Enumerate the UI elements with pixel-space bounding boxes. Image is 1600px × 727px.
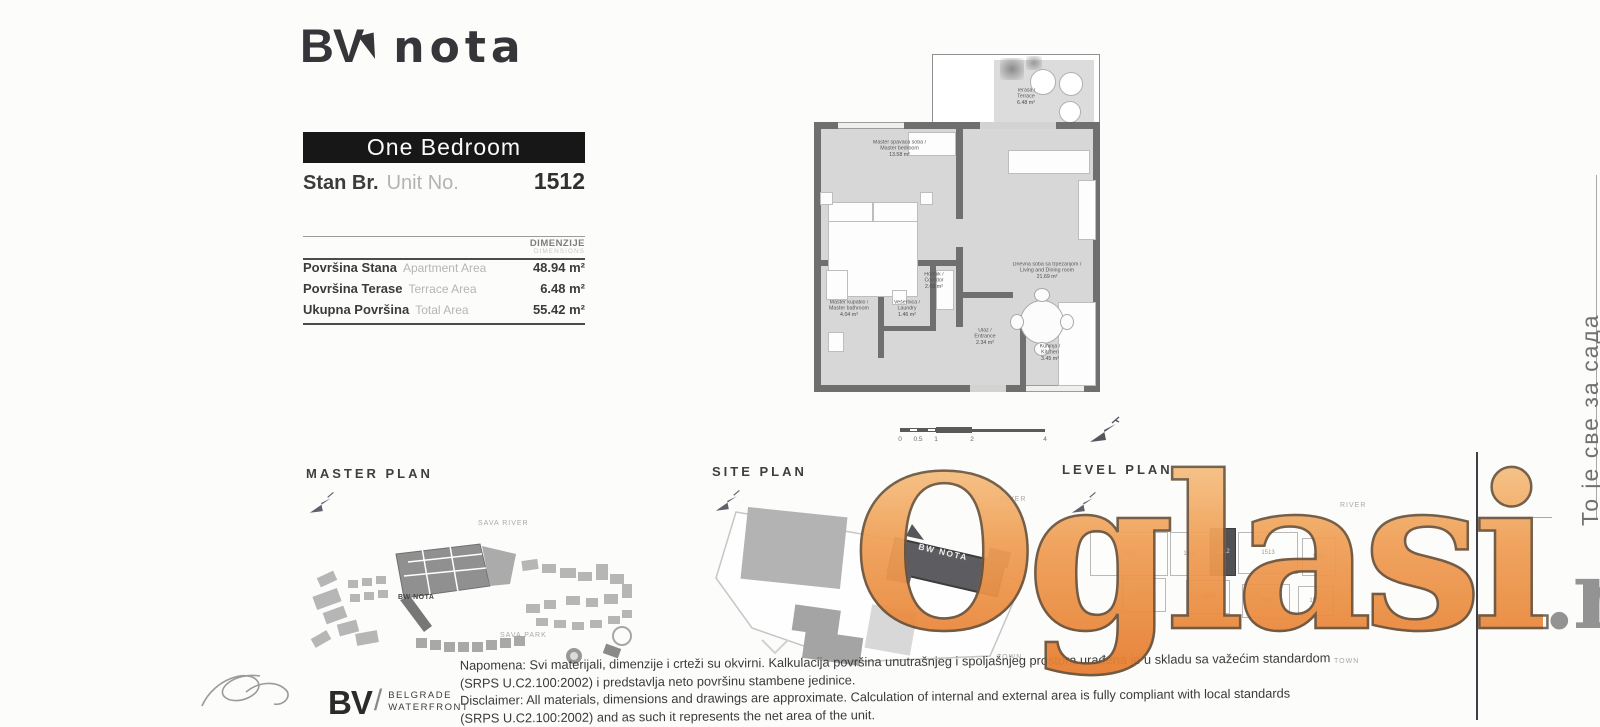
row-value: 55.42 m² — [533, 302, 585, 317]
room-label-kitchen: Kuhinja / Kitchen 3.45 m² — [1027, 344, 1073, 363]
row-label-en: Total Area — [415, 303, 468, 317]
unit-box: 1502 — [1122, 578, 1166, 612]
partition-wall — [963, 292, 1013, 298]
floor-plan: Terasa / Terrace 6.48 m² Master spavaća … — [812, 52, 1104, 397]
room-label-laundry: Vešernica / Laundry 1.46 m² — [887, 300, 927, 319]
unit-box: 1508 — [1170, 532, 1210, 576]
terrace-door — [980, 122, 1056, 129]
side-note-text: То је све за сада — [1577, 186, 1600, 526]
window — [838, 122, 904, 129]
partition-wall — [956, 129, 963, 219]
scanned-floor-plan-page: { "brand": {"bv": "BV", "nota": "nota"},… — [0, 0, 1600, 720]
nightstand — [820, 192, 833, 205]
table-row: Ukupna Površina Total Area 55.42 m² — [303, 302, 585, 323]
pillow — [828, 202, 873, 222]
logo-nota-text: nota — [393, 22, 525, 73]
table-header-sub: DIMENSIONS — [303, 249, 585, 256]
disclaimer-text: Napomena: Svi materijali, dimenzije i cr… — [460, 647, 1561, 727]
shower — [826, 270, 848, 300]
unit-box: 1513 — [1238, 532, 1298, 574]
row-label-sr: Površina Stana — [303, 260, 397, 275]
master-plan-title: MASTER PLAN — [306, 466, 433, 481]
room-label-living: Dnevna soba sa trpezarijom / Living and … — [1003, 262, 1091, 281]
row-label-en: Apartment Area — [403, 261, 486, 275]
room-label-master-bedroom: Master spavaća soba / Master bedroom 13.… — [849, 140, 950, 159]
sava-river-label: SAVA RIVER — [478, 520, 529, 527]
unit-label-sr: Stan Br. — [303, 172, 379, 195]
river-label: RIVER — [1340, 502, 1366, 509]
signature-swirl — [196, 662, 296, 720]
site-plan-title: SITE PLAN — [712, 464, 807, 479]
row-value: 6.48 m² — [540, 281, 585, 296]
nightstand — [920, 192, 933, 205]
pillow — [873, 202, 918, 222]
table-row: Površina Stana Apartment Area 48.94 m² — [303, 260, 585, 281]
footer-slash: / — [374, 684, 382, 718]
table-row: Površina Terase Terrace Area 6.48 m² — [303, 281, 585, 302]
room-label-entrance: Ulaz / Entrance 2.34 m² — [967, 328, 1004, 347]
unit-number-row: Stan Br. Unit No. 1512 — [303, 168, 585, 195]
dining-table — [1020, 300, 1064, 344]
photo-edge-line — [1476, 452, 1478, 720]
level-plan-title: LEVEL PLAN — [1062, 462, 1173, 477]
chair — [1034, 288, 1050, 302]
level-plan-map: 1501 1508 1512 1513 1514 1502 1503 1504 … — [1058, 486, 1350, 668]
bw-nota-map-label: BW NOTA — [398, 594, 434, 601]
area-table: DIMENZIJE DIMENSIONS Površina Stana Apar… — [303, 236, 585, 325]
table-header: DIMENZIJE DIMENSIONS — [303, 237, 585, 257]
room-label-master-bathroom: Master kupatilo / Master bathroom 4.04 m… — [825, 300, 873, 319]
watermark-suffix: .rs — [1543, 540, 1600, 651]
unit-box: 1503 — [1186, 580, 1230, 614]
bw-nota-logo: BVnota — [300, 18, 526, 73]
table-bottom-rule — [303, 323, 585, 325]
terrace-plant — [1026, 56, 1042, 70]
chair — [1010, 314, 1024, 330]
chair — [1060, 314, 1074, 330]
unit-label-en: Unit No. — [387, 172, 459, 195]
unit-box: 1501 — [1090, 532, 1168, 576]
scale-tick: 1 — [934, 436, 938, 443]
partition-wall — [878, 326, 936, 331]
row-label-en: Terrace Area — [408, 282, 476, 296]
belgrade-waterfront-logo: BV / BELGRADE WATERFRONT — [328, 684, 469, 722]
terrace-table — [1059, 101, 1081, 123]
unit-box-highlighted: 1512 — [1210, 528, 1236, 576]
footer-name: BELGRADE WATERFRONT — [388, 684, 469, 714]
north-arrow-icon — [308, 490, 336, 516]
sava-park-label: SAVA PARK — [500, 632, 547, 639]
master-plan-map — [304, 514, 638, 664]
entrance-door — [970, 385, 1006, 392]
scan-edge-tick — [1532, 517, 1552, 518]
row-value: 48.94 m² — [533, 260, 585, 275]
partition-wall — [956, 247, 963, 327]
terrace-plant — [1000, 58, 1024, 80]
unit-box: 1504 — [1242, 584, 1290, 618]
site-plan-map — [700, 490, 1040, 668]
toilet — [828, 332, 844, 352]
sofa — [1008, 150, 1090, 174]
row-label-sr: Površina Terase — [303, 281, 402, 296]
unit-type-banner: One Bedroom — [303, 132, 585, 163]
room-label-corridor: Hodnik / Corridor 2.09 m² — [911, 272, 957, 291]
terrace-table — [1059, 72, 1083, 96]
scale-tick: 4 — [1043, 436, 1047, 443]
scale-tick: 0.5 — [913, 436, 922, 443]
unit-number: 1512 — [534, 168, 585, 195]
unit-box: 1514 — [1302, 538, 1336, 576]
scale-tick: 2 — [970, 436, 974, 443]
scale-tick: 0 — [898, 436, 902, 443]
scale-bar: 0 0.5 1 2 4 — [900, 424, 1050, 444]
logo-bw-text: BV — [300, 19, 363, 72]
window — [1026, 385, 1084, 392]
kitchen-counter — [1078, 180, 1096, 240]
footer-bw-text: BV — [328, 684, 372, 722]
river-label: RIVER — [1000, 496, 1026, 503]
unit-box: 1507 — [1298, 586, 1334, 616]
room-label-terrace: Terasa / Terrace 6.48 m² — [1001, 88, 1050, 107]
north-arrow-icon — [1088, 414, 1122, 446]
row-label-sr: Ukupna Površina — [303, 302, 409, 317]
